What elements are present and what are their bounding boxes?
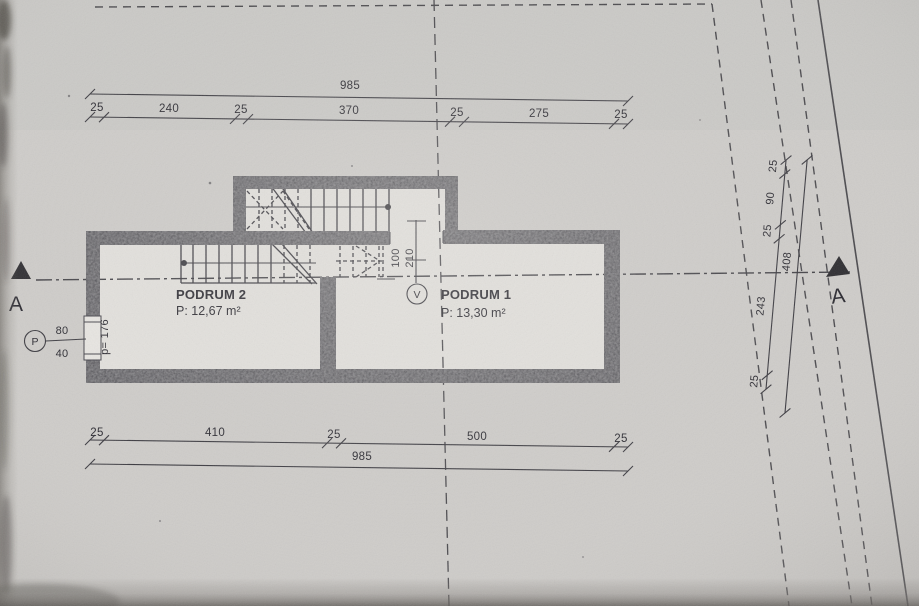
floor-plan-drawing: V 100 210 P 80 40 p= 176 PODRUM 2 P: 12,… xyxy=(0,0,919,606)
grain-overlay xyxy=(0,0,919,606)
scanned-floor-plan-page: V 100 210 P 80 40 p= 176 PODRUM 2 P: 12,… xyxy=(0,0,919,606)
scan-artifacts xyxy=(0,0,919,606)
